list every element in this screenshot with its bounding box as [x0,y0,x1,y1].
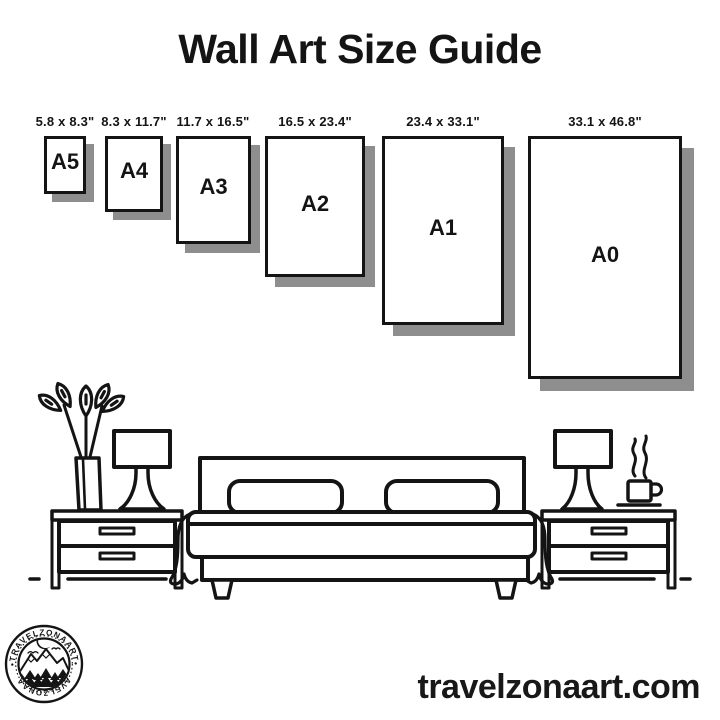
brand-logo: •TRAVELZONAART• •TRAVELZONAART• [2,622,86,706]
size-box-a0: A0 [528,136,682,379]
size-box-a3: A3 [176,136,251,244]
size-name-a5: A5 [51,149,79,175]
pillow-right [386,481,498,513]
size-name-a2: A2 [301,191,329,217]
size-box-a4: A4 [105,136,163,212]
steam-icon [633,436,647,478]
lamp-shade [114,431,170,467]
size-name-a3: A3 [199,174,227,200]
size-dimensions-a0: 33.1 x 46.8" [540,114,670,129]
bed-leg [212,580,232,598]
vase [76,458,101,510]
nightstand-right [542,511,675,588]
size-name-a4: A4 [120,158,148,184]
size-box-a2: A2 [265,136,365,277]
table-lamp-left [114,431,170,509]
table-lamp-right [555,431,611,509]
coffee-cup [618,436,662,505]
bedroom-scene-illustration [0,378,720,608]
lamp-shade [555,431,611,467]
size-name-a0: A0 [591,242,619,268]
size-dimensions-a1: 23.4 x 33.1" [378,114,508,129]
size-box-a1: A1 [382,136,504,325]
size-box-a5: A5 [44,136,86,194]
double-bed [171,458,553,598]
website-url: travelzonaart.com [418,668,701,707]
wall-art-size-guide-poster: Wall Art Size Guide 5.8 x 8.3" A5 8.3 x … [0,0,720,720]
size-name-a1: A1 [429,215,457,241]
pillow-left [229,481,342,513]
bed-base [202,557,528,580]
nightstand-left [52,511,182,588]
duvet [188,512,535,557]
bed-leg [496,580,516,598]
page-title: Wall Art Size Guide [0,26,720,73]
size-dimensions-a2: 16.5 x 23.4" [250,114,380,129]
